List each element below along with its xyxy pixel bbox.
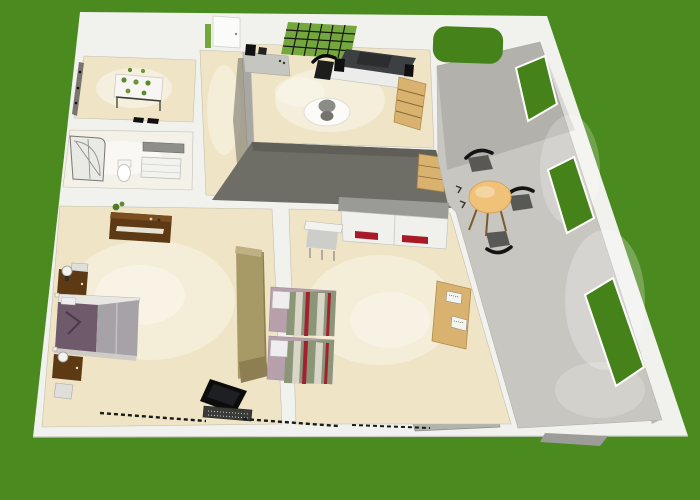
wall-mirror[interactable]: [143, 142, 184, 153]
room-master-bedroom: [42, 202, 282, 427]
floor-item[interactable]: [133, 117, 144, 123]
knob: [283, 62, 285, 64]
entry-door[interactable]: [213, 16, 240, 48]
dresser-item: [158, 219, 161, 222]
plant: [113, 204, 120, 211]
plant: [121, 77, 126, 82]
knob: [279, 60, 281, 62]
speaker: [334, 58, 345, 72]
bed-post: [53, 347, 57, 351]
plant: [142, 91, 147, 96]
light-pool: [350, 292, 430, 348]
lamp-base: [65, 276, 69, 281]
single-bed-2[interactable]: [267, 336, 334, 384]
corner-shower[interactable]: [70, 136, 105, 181]
vanity-cabinet[interactable]: [141, 157, 181, 179]
toilet[interactable]: [118, 160, 132, 182]
nightstand: [57, 269, 88, 297]
purple-blanket: [55, 302, 98, 353]
plant: [145, 80, 150, 85]
chair-seat: [509, 194, 533, 211]
rack-detail: [75, 102, 78, 105]
pillow: [272, 291, 290, 309]
double-bed[interactable]: [53, 293, 140, 361]
floor-plan-render: [0, 0, 700, 500]
chair-seat: [486, 231, 510, 248]
toilet-bowl: [118, 165, 131, 182]
floor-plan-viewport: [0, 0, 700, 500]
plant: [133, 79, 138, 84]
rack-detail: [77, 87, 80, 90]
single-bed-1[interactable]: [269, 287, 336, 336]
rack-detail: [79, 71, 82, 74]
plant: [141, 69, 145, 73]
appliance: [258, 47, 267, 55]
knob: [81, 283, 83, 285]
plant: [126, 89, 131, 94]
pin-board[interactable]: [432, 281, 471, 349]
floor-item[interactable]: [147, 118, 159, 124]
plant: [120, 202, 125, 207]
glass-sidelight[interactable]: [205, 24, 211, 48]
shelf-item: [411, 68, 414, 71]
tall-wardrobe[interactable]: [235, 246, 268, 383]
pillow: [270, 340, 288, 357]
pillow: [61, 297, 76, 305]
room-bathroom: [63, 130, 193, 190]
vase-base: [321, 111, 334, 121]
board: [432, 281, 471, 349]
dresser[interactable]: [109, 212, 172, 243]
round-glass-table[interactable]: [304, 98, 350, 126]
arched-opening[interactable]: [432, 26, 503, 64]
door-handle: [235, 33, 237, 35]
vase: [319, 100, 336, 113]
desk-drawers: [306, 229, 338, 250]
plant: [128, 68, 132, 72]
vanity-body: [141, 157, 181, 179]
appliance: [245, 44, 256, 56]
side-table[interactable]: [54, 383, 73, 399]
wardrobe-red-accents[interactable]: [338, 197, 449, 249]
bed-post: [55, 293, 59, 297]
lamp: [58, 352, 68, 362]
lamp: [62, 266, 72, 276]
duvet-fold: [116, 302, 117, 355]
room-plant-room: [72, 56, 196, 124]
dresser-item: [150, 218, 153, 221]
table-highlight: [475, 186, 495, 198]
speaker: [404, 64, 414, 77]
counter-top: [243, 52, 290, 76]
knob: [76, 367, 78, 369]
